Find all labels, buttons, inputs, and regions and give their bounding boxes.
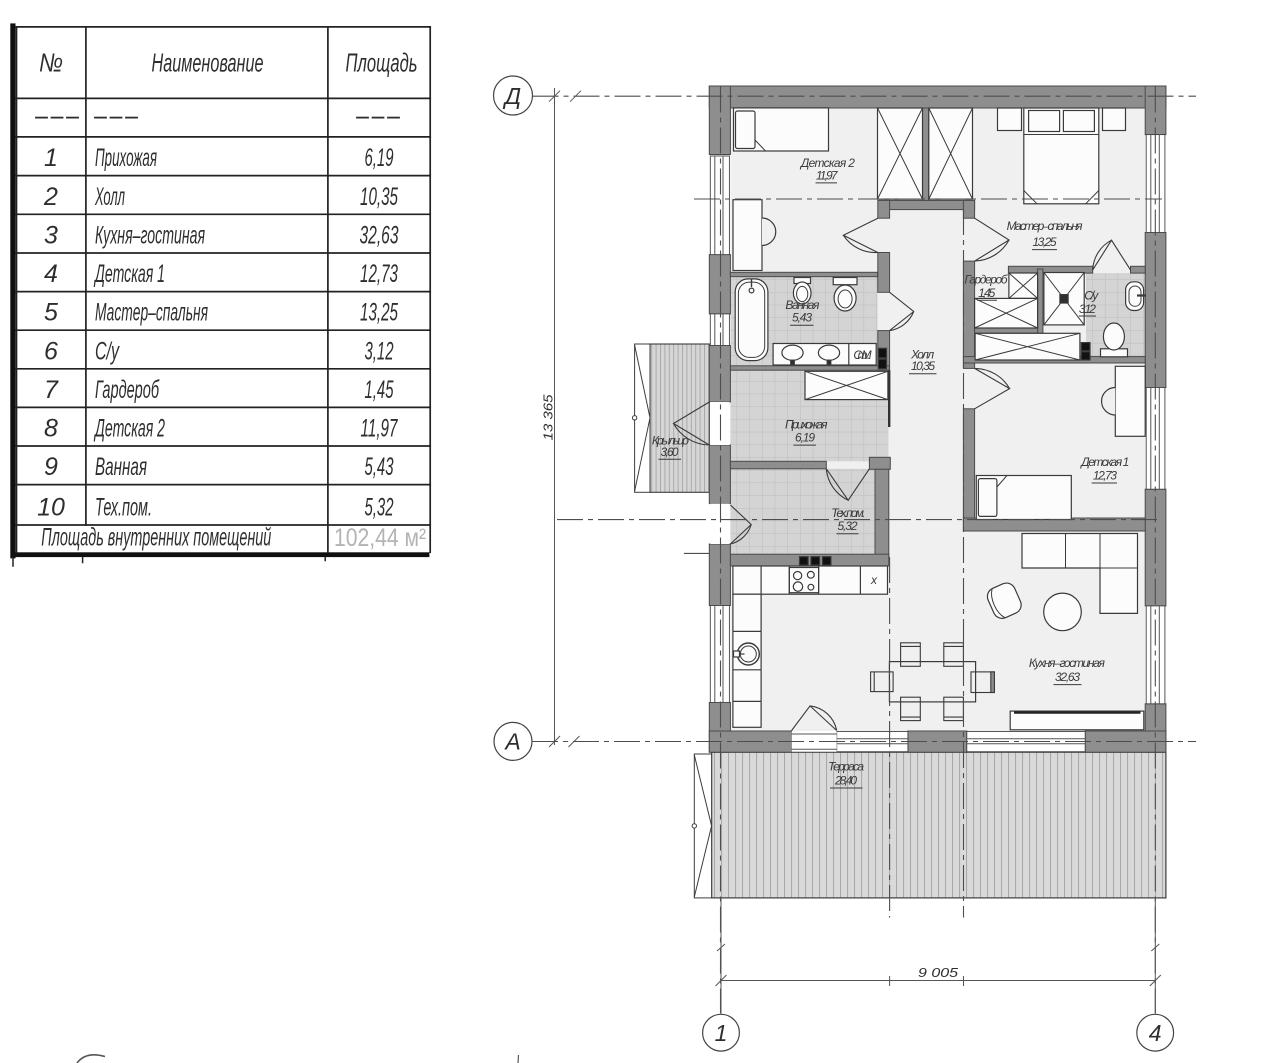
svg-text:Детская 1: Детская 1 — [93, 260, 165, 288]
svg-text:С/у: С/у — [1084, 289, 1099, 303]
svg-text:11,97: 11,97 — [361, 415, 399, 443]
svg-text:11,97: 11,97 — [816, 169, 839, 183]
svg-text:3,12: 3,12 — [1079, 302, 1096, 316]
svg-text:Прихожая: Прихожая — [95, 144, 157, 172]
svg-text:Детская 1: Детская 1 — [1079, 455, 1129, 469]
svg-text:13 365: 13 365 — [541, 394, 556, 441]
svg-text:5,32: 5,32 — [365, 494, 394, 522]
svg-text:5,43: 5,43 — [365, 453, 394, 481]
svg-text:Прихожая: Прихожая — [785, 417, 828, 431]
svg-text:13,25: 13,25 — [1033, 235, 1057, 249]
svg-text:1,45: 1,45 — [365, 376, 394, 404]
svg-text:Площадь внутренних помещений: Площадь внутренних помещений — [41, 524, 271, 552]
svg-text:Терраса: Терраса — [828, 760, 864, 774]
svg-text:1,45: 1,45 — [978, 286, 995, 300]
svg-text:102,44 м²: 102,44 м² — [334, 524, 426, 552]
svg-text:13,25: 13,25 — [360, 299, 398, 327]
svg-text:Гардероб: Гардероб — [965, 272, 1009, 286]
svg-text:32,63: 32,63 — [360, 222, 399, 250]
svg-text:28,40: 28,40 — [834, 774, 857, 788]
svg-text:12,73: 12,73 — [360, 260, 398, 288]
svg-text:2: 2 — [43, 183, 58, 211]
svg-text:10,35: 10,35 — [360, 183, 398, 211]
svg-text:5,43: 5,43 — [792, 311, 812, 325]
svg-text:6: 6 — [44, 337, 58, 365]
svg-text:Гардероб: Гардероб — [95, 376, 160, 404]
svg-text:7: 7 — [44, 376, 59, 404]
svg-text:Мастер–спальня: Мастер–спальня — [95, 299, 208, 327]
svg-text:3: 3 — [44, 222, 58, 250]
svg-text:Ст.М.: Ст.М. — [853, 348, 871, 362]
svg-text:10: 10 — [37, 494, 65, 522]
svg-text:1: 1 — [715, 1020, 728, 1046]
svg-text:А: А — [503, 729, 520, 755]
svg-text:Ванная: Ванная — [95, 453, 147, 481]
svg-text:Кухня–гостиная: Кухня–гостиная — [95, 222, 205, 250]
svg-text:4: 4 — [44, 260, 58, 288]
svg-text:8: 8 — [44, 415, 58, 443]
svg-text:1: 1 — [44, 144, 58, 172]
svg-text:9 005: 9 005 — [918, 965, 959, 980]
svg-text:Холл: Холл — [94, 183, 125, 211]
svg-text:Д: Д — [502, 83, 521, 109]
svg-text:5,32: 5,32 — [838, 519, 858, 533]
svg-text:3,12: 3,12 — [365, 337, 394, 365]
svg-text:Тех.пом.: Тех.пом. — [95, 494, 152, 522]
svg-text:Площадь: Площадь — [346, 48, 418, 78]
svg-text:6,19: 6,19 — [365, 144, 394, 172]
svg-text:Детская 2: Детская 2 — [93, 415, 165, 443]
svg-text:6,19: 6,19 — [795, 431, 815, 445]
svg-text:5: 5 — [44, 299, 58, 327]
svg-text:4: 4 — [1149, 1020, 1162, 1046]
svg-text:10,35: 10,35 — [911, 359, 935, 373]
svg-text:Наименование: Наименование — [152, 48, 264, 78]
svg-text:9: 9 — [44, 453, 58, 481]
svg-text:Тех.пом.: Тех.пом. — [831, 506, 865, 520]
svg-text:3,60: 3,60 — [661, 445, 679, 459]
svg-text:Кухня–гостиная: Кухня–гостиная — [1029, 656, 1106, 670]
svg-text:32,63: 32,63 — [1055, 670, 1080, 684]
svg-text:С/у: С/у — [95, 337, 120, 365]
svg-text:12,73: 12,73 — [1093, 469, 1117, 483]
svg-text:Мастер–спальня: Мастер–спальня — [1007, 219, 1084, 233]
svg-text:х: х — [870, 573, 878, 587]
svg-text:№: № — [39, 48, 63, 78]
